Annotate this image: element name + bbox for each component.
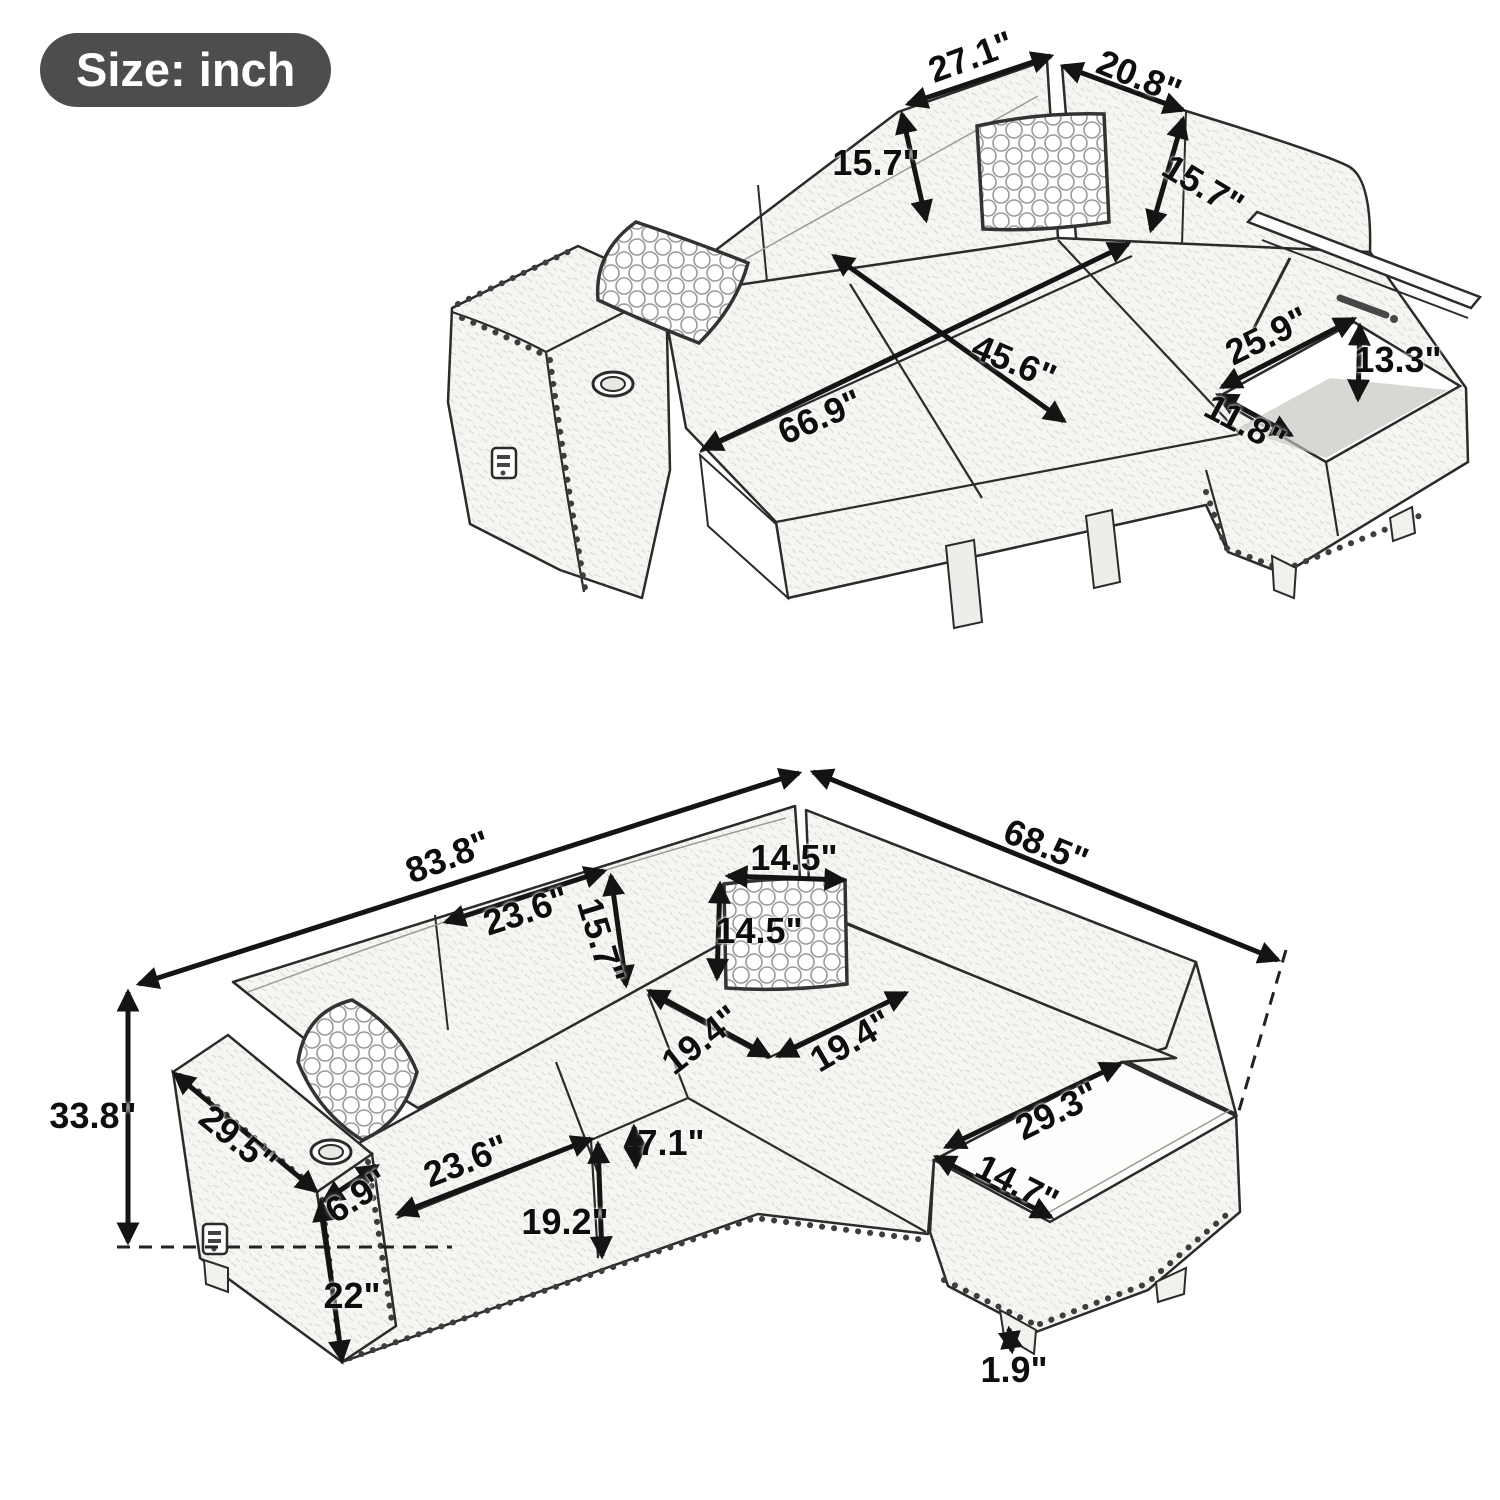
dim-leg-height: 1.9" [980, 1349, 1047, 1391]
size-diagram-page: Size: inch [0, 0, 1500, 1500]
dim-overall-height: 33.8" [49, 1095, 136, 1137]
usb-charging-port [203, 1224, 227, 1254]
dim-seat-cushion-thickness: 7.1" [637, 1122, 704, 1164]
usb-charging-port [492, 448, 516, 478]
size-unit-badge: Size: inch [40, 33, 331, 107]
dim-storage-depth: 13.3" [1354, 339, 1441, 381]
dim-arm-front-height: 22" [323, 1275, 380, 1317]
dim-back-height-left: 15.7" [832, 142, 919, 184]
cup-holder [593, 372, 633, 396]
dim-pillow-height: 14.5" [715, 910, 802, 952]
extended-sleeper-illustration [430, 15, 1500, 720]
throw-pillow-corner [977, 114, 1109, 230]
dim-pillow-width: 14.5" [750, 837, 837, 879]
cup-holder [311, 1140, 351, 1164]
dim-seat-front-height: 19.2" [521, 1201, 608, 1243]
